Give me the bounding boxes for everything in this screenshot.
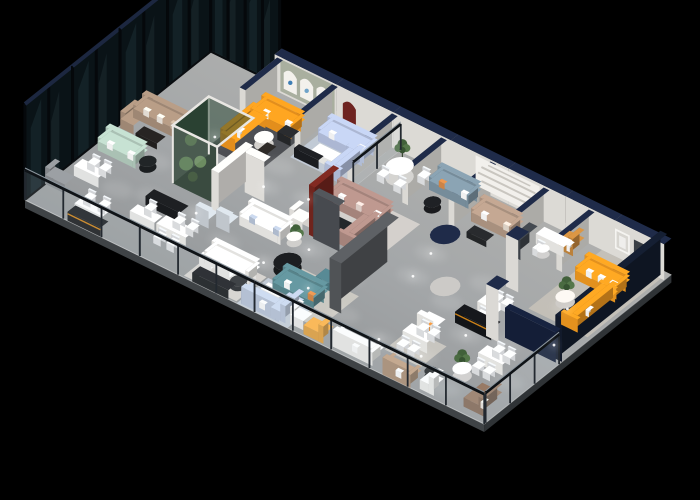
arch-logo-2	[304, 89, 308, 93]
white-round-side	[537, 244, 550, 258]
mint-side-table	[139, 156, 156, 173]
showroom-floorplan-image: S	[0, 0, 700, 500]
arch-logo-1	[288, 81, 292, 85]
isometric-floorplan-canvas: S	[0, 0, 700, 500]
round-side-table	[287, 232, 302, 248]
round-table-back	[424, 196, 441, 213]
